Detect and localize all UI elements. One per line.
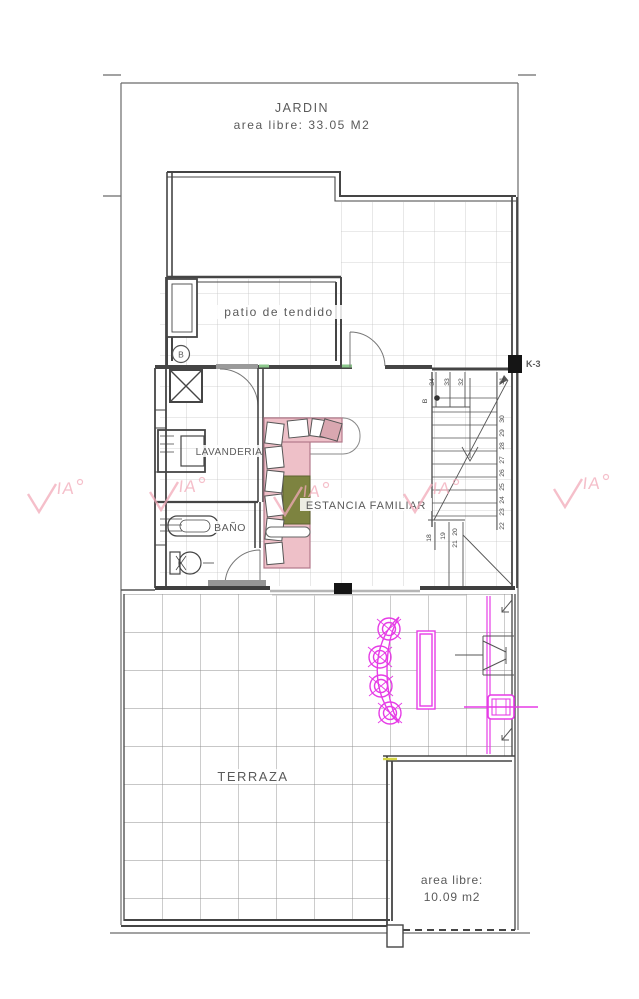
watermark-ia-text: IA (582, 474, 602, 493)
lavanderia-label: LAVANDERIA (196, 447, 263, 458)
floor-plan-page: B (0, 0, 639, 999)
jardin-label: JARDIN (275, 101, 329, 115)
stair-number: 27 (499, 456, 506, 464)
structural-column (508, 355, 522, 373)
stair-number: 21 (452, 540, 459, 548)
stair-number: 22 (499, 522, 506, 530)
column-tag-label: K-3 (526, 359, 541, 369)
stair-number: 29 (499, 429, 506, 437)
stair-point-b-label: B (422, 398, 429, 403)
shaft-x-box (170, 370, 202, 402)
watermark-ia-text: IA (302, 482, 322, 501)
terraza-area-label-2: 10.09 m2 (424, 890, 480, 904)
terrace-tile-grid (124, 594, 512, 921)
stair-number: 31 (499, 377, 506, 385)
watermark-via: IA (28, 479, 83, 512)
coffee-table (266, 527, 310, 537)
patio-point-b-marker: B (173, 346, 190, 363)
watermark-ia-text: IA (432, 479, 452, 498)
watermark-v-shape (554, 479, 582, 507)
stair-number: 34 (429, 378, 436, 386)
stair-point-b-dot (434, 395, 440, 401)
stair-number: 28 (499, 442, 506, 450)
terraza-label: TERRAZA (217, 769, 288, 784)
patio-point-b-label: B (178, 350, 184, 360)
stair-number: 19 (440, 532, 447, 540)
watermark-via: IA (554, 474, 609, 507)
stair-number: 26 (499, 469, 506, 477)
terraza-area-label-1: area libre: (421, 873, 483, 887)
patio-label: patio de tendido (224, 305, 333, 319)
stair-number: 23 (499, 508, 506, 516)
stair-number: 33 (444, 378, 451, 386)
watermark-v-shape (28, 484, 56, 512)
stair-number: 30 (499, 415, 506, 423)
stair-number: 24 (499, 496, 506, 504)
patio-door-slab (216, 364, 258, 369)
bano-label: BAÑO (214, 521, 246, 534)
jardin-area-label: area libre: 33.05 M2 (234, 118, 371, 132)
watermark-ia-text: IA (56, 479, 76, 498)
door-threshold-block (334, 583, 352, 594)
bottom-pier (387, 925, 403, 947)
stair-number: 20 (452, 528, 459, 536)
stair-number: 18 (426, 534, 433, 542)
stair-number: 32 (458, 378, 465, 386)
floor-plan-svg: B (0, 0, 639, 999)
watermark-ia-text: IA (178, 477, 198, 496)
stair-number: 25 (499, 483, 506, 491)
